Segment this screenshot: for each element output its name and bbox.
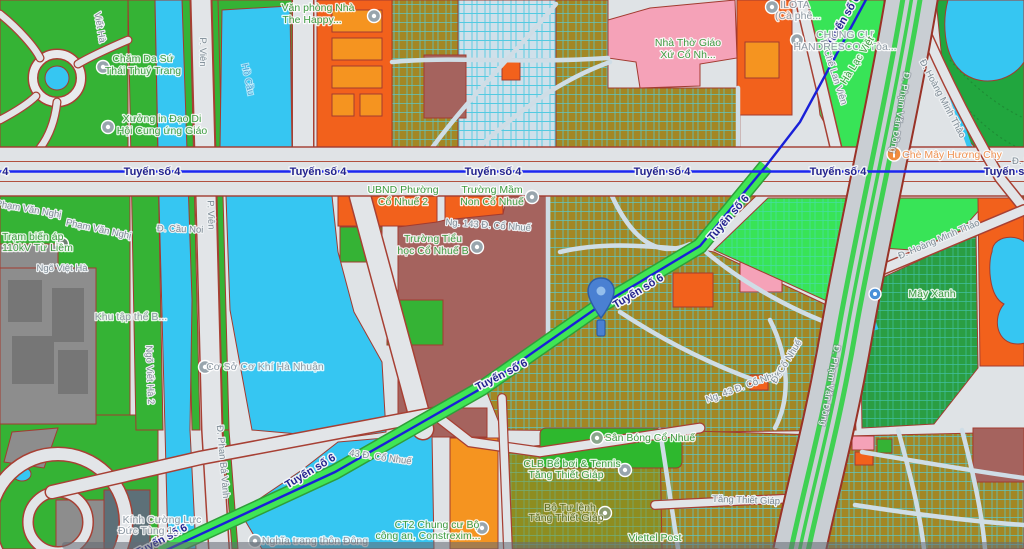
line4-label: Tuyến số 4: [634, 166, 692, 178]
poi-ubnd-l2: Cổ Nhuế 2: [378, 196, 428, 208]
poi-mam-non-l2: Non Cổ Nhuế: [460, 196, 524, 208]
soccer-field-icon[interactable]: [591, 432, 604, 445]
zone-amber-topright: [745, 42, 779, 78]
poi-print-l2: Hội Cung ứng Giáo: [117, 125, 208, 137]
poi-ilota-l2: (Cà phê...: [775, 10, 821, 22]
zone-gray-sub-3: [12, 336, 54, 384]
zone-amber-block-5: [360, 94, 382, 116]
zone-gray-sub-4: [58, 350, 88, 394]
poi-ct2-l2: công an, Constrexim...: [375, 530, 480, 542]
zone-maroon-top: [424, 55, 466, 118]
poi-spa-l1: Chăm Da Sứ: [112, 53, 173, 65]
zone-gray-sub-2: [52, 288, 84, 342]
poi-may-xanh: Mây Xanh: [908, 288, 955, 300]
icon-glyph: [106, 125, 110, 129]
zone-gray-sub-1: [8, 280, 42, 322]
poi-ubnd-l1: UBND Phường: [367, 184, 438, 196]
map-canvas[interactable]: Tuyến số 4 Tuyến số 4 Tuyến số 4 Tuyến s…: [0, 0, 1024, 549]
icon-glyph: [372, 14, 376, 18]
lake-ho-cau: [220, 6, 292, 148]
office-icon[interactable]: [368, 10, 381, 23]
line4-label: Tuyến số 4: [290, 166, 348, 178]
mayxanh-icon[interactable]: [869, 288, 881, 300]
poi-mam-non-l1: Trường Mầm: [461, 184, 523, 196]
poi-print-l1: Xưởng in Đạo Di: [123, 113, 202, 125]
zone-amber-block-2: [332, 38, 382, 60]
zone-amber-block-3: [332, 66, 382, 88]
line4-label: Tuyến số 4: [0, 166, 9, 178]
pin-inner-dot: [597, 287, 606, 296]
icon-glyph: [530, 195, 534, 199]
zone-orange-mid-1: [673, 273, 713, 307]
icon-glyph: [623, 468, 627, 472]
road-label-partial: Đ. H: [1012, 156, 1024, 167]
poi-san-bong: Sân Bóng Cổ Nhuế: [605, 432, 696, 444]
line4-label: Tuyến số 4: [810, 166, 868, 178]
poi-office-l2: The Happy...: [282, 14, 341, 26]
line4-label: Tuyến số 4: [124, 166, 182, 178]
road-label-p-vien: P. Viên: [197, 37, 208, 66]
zone-green-small: [877, 439, 892, 453]
poi-office-l1: Văn phòng Nhà: [282, 2, 355, 14]
poi-substation-l2: 110kV Từ Liêm: [2, 242, 73, 254]
poi-church-l1: Nhà Thờ Giáo: [655, 37, 721, 49]
school-icon[interactable]: [471, 241, 484, 254]
zone-pink-small: [852, 436, 874, 450]
poi-co-khi: Cơ Sở Cơ Khí Hà Nhuận: [206, 361, 324, 373]
poi-kinh-cuong-luc-l2: Đức Tùng 1...: [118, 525, 182, 537]
icon-glyph: [770, 5, 774, 9]
line4-label: Tuyến số 4: [465, 166, 523, 178]
icon-glyph: [873, 292, 877, 296]
line4-label: Tuyến số 4: [984, 166, 1024, 178]
road-label-cau-noi: Đ. Cầu Noi: [157, 223, 204, 236]
poi-khu-tap-the: Khu tập thể B...: [95, 311, 167, 323]
road-label-ngo-viet-ha: Ngõ Việt Hà: [36, 263, 88, 274]
poi-tieu-hoc-l1: Trường Tiểu: [404, 233, 462, 245]
minor-street: [392, 58, 608, 62]
zone-amber-block-4: [332, 94, 354, 116]
poi-bo-tu-lenh-l2: Tăng Thiết Giáp: [528, 512, 603, 524]
print-shop-icon[interactable]: [102, 121, 115, 134]
bottom-scrollbar[interactable]: [62, 542, 1024, 549]
icon-glyph: [595, 436, 599, 440]
kindergarten-icon[interactable]: [526, 191, 539, 204]
poi-tieu-hoc-l2: học Cổ Nhuế B: [397, 245, 468, 257]
park-pond: [45, 66, 69, 90]
road-label-ngo-viet-ha-2: Ngõ Viết Hà 2: [143, 345, 156, 404]
pin-stem: [597, 320, 605, 336]
poi-spa-l2: Thái Thuý Trang: [105, 65, 181, 77]
road-label-p-vien: P. Viên: [204, 200, 216, 230]
poi-che-may: Chè Mây Hương Chy: [902, 149, 1002, 161]
poi-chungcu-l2: HANDRESCO - Tòa...: [793, 41, 896, 53]
icon-glyph: [475, 245, 479, 249]
poi-church-l2: Xứ Cổ Nh...: [660, 49, 715, 61]
poi-clb-l2: Tăng Thiết Giáp: [528, 469, 603, 481]
